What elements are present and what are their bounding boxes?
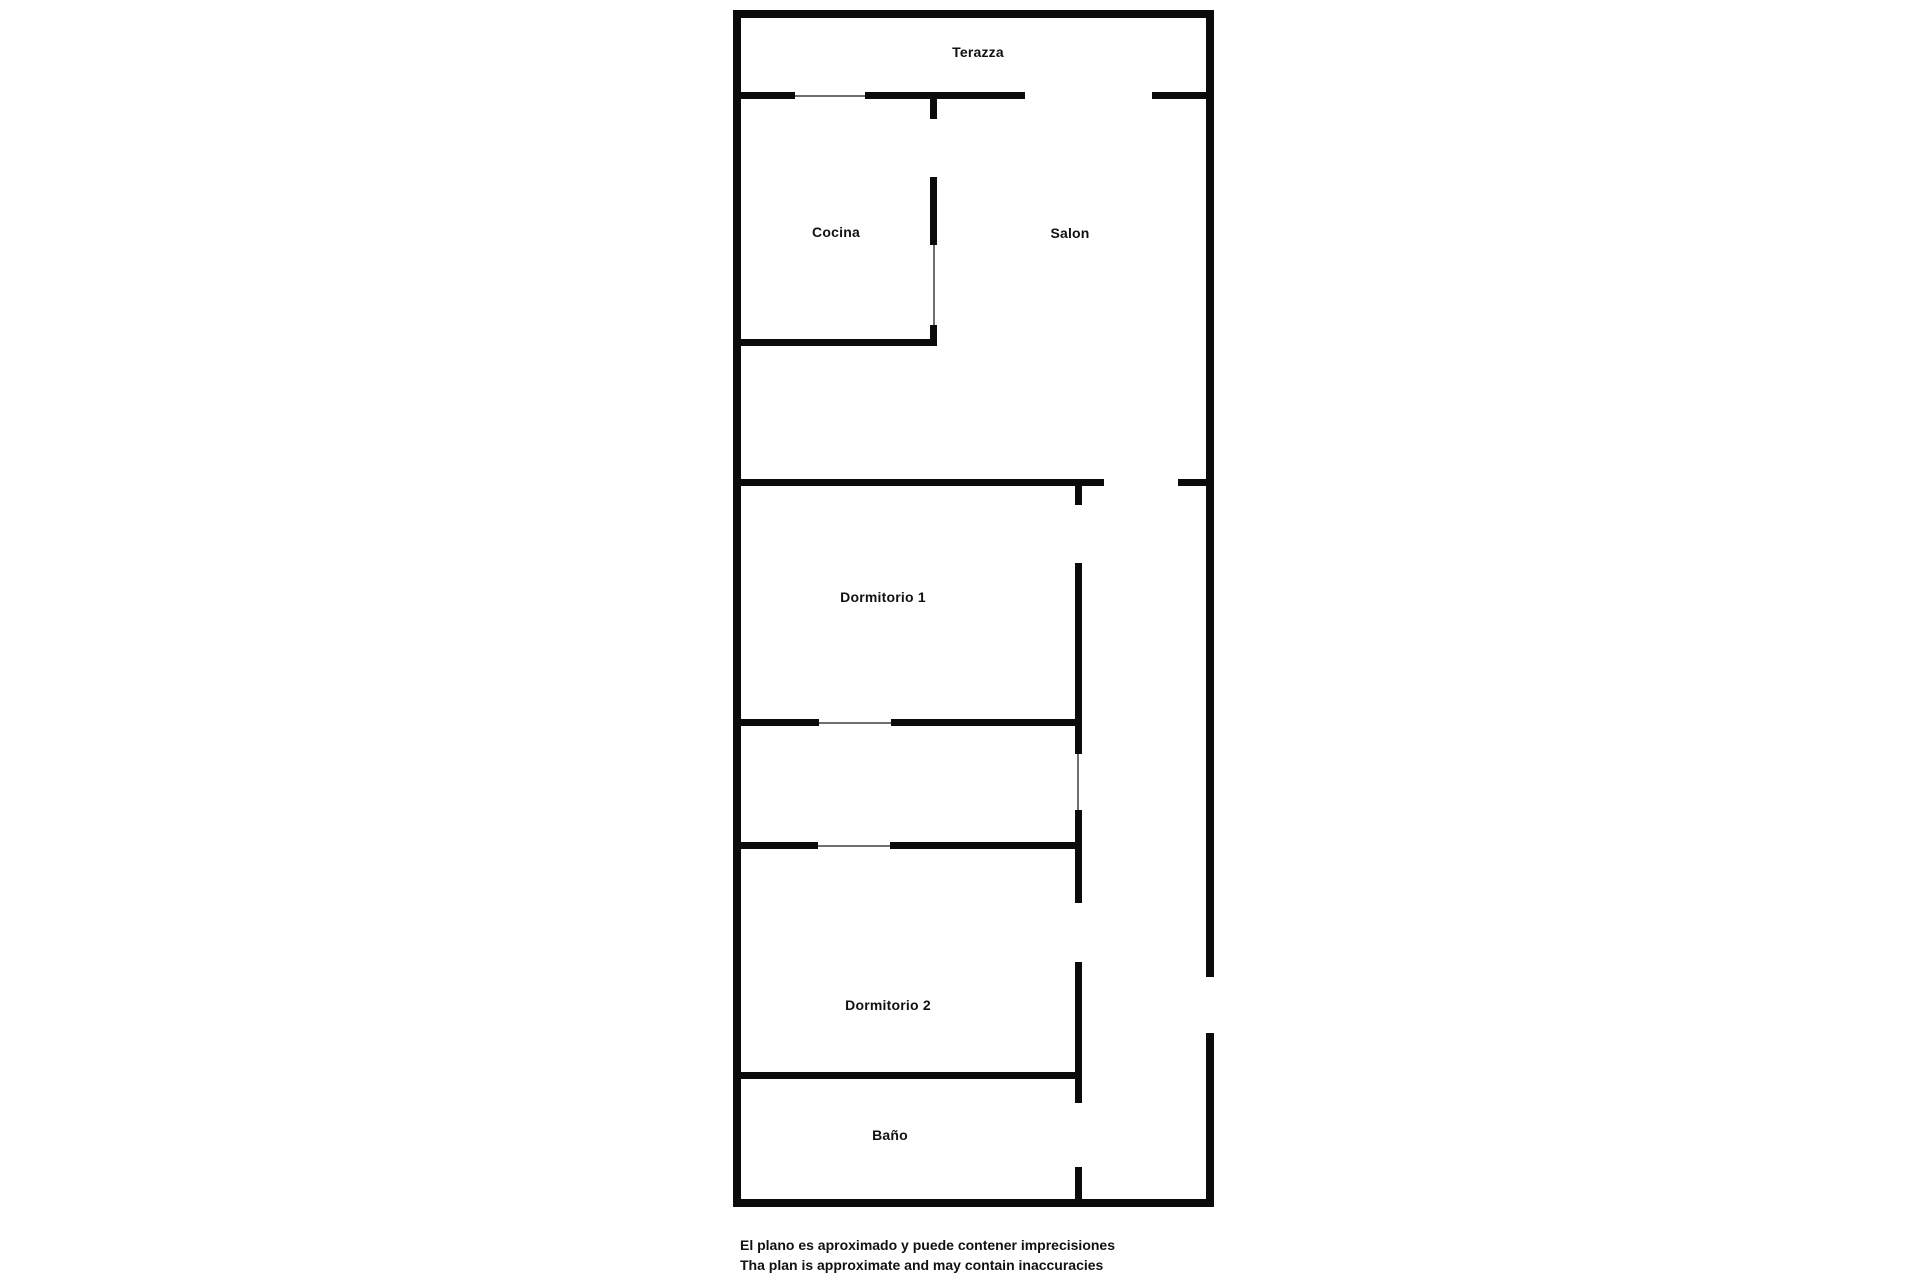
floor-plan-page: TerazzaCocinaSalonDormitorio 1Dormitorio… [0, 0, 1920, 1280]
door-window-line [819, 722, 891, 724]
door-window-line [795, 95, 867, 97]
wall-segment [1206, 10, 1214, 977]
room-label-dormitorio-2: Dormitorio 2 [845, 997, 931, 1013]
disclaimer-line-es: El plano es aproximado y puede contener … [740, 1235, 1115, 1255]
room-label-terazza: Terazza [952, 44, 1004, 60]
wall-segment [1178, 479, 1208, 486]
room-label-dormitorio-1: Dormitorio 1 [840, 589, 926, 605]
wall-segment [737, 842, 818, 849]
wall-segment [930, 92, 937, 119]
wall-segment [1206, 1033, 1214, 1207]
door-window-line [818, 845, 890, 847]
wall-segment [737, 1072, 1082, 1079]
wall-segment [1075, 1167, 1082, 1207]
wall-segment [733, 10, 741, 1207]
wall-segment [930, 177, 937, 245]
disclaimer-line-en: Tha plan is approximate and may contain … [740, 1255, 1115, 1275]
wall-segment [1075, 962, 1082, 1103]
room-label-salon: Salon [1050, 225, 1089, 241]
wall-segment [737, 479, 1104, 486]
wall-segment [891, 719, 1082, 726]
wall-segment [737, 92, 795, 99]
disclaimer: El plano es aproximado y puede contener … [740, 1235, 1115, 1275]
door-window-line [933, 245, 935, 325]
wall-segment [1075, 810, 1082, 903]
wall-segment [1152, 92, 1208, 99]
wall-segment [737, 339, 937, 346]
wall-segment [733, 10, 1214, 18]
floor-plan: TerazzaCocinaSalonDormitorio 1Dormitorio… [0, 0, 1920, 1280]
wall-segment [890, 842, 1082, 849]
wall-segment [865, 92, 1025, 99]
wall-segment [737, 719, 819, 726]
room-label-bano: Baño [872, 1127, 908, 1143]
door-window-line [1077, 754, 1079, 810]
room-label-cocina: Cocina [812, 224, 860, 240]
wall-segment [733, 1199, 1214, 1207]
wall-segment [1075, 479, 1082, 505]
